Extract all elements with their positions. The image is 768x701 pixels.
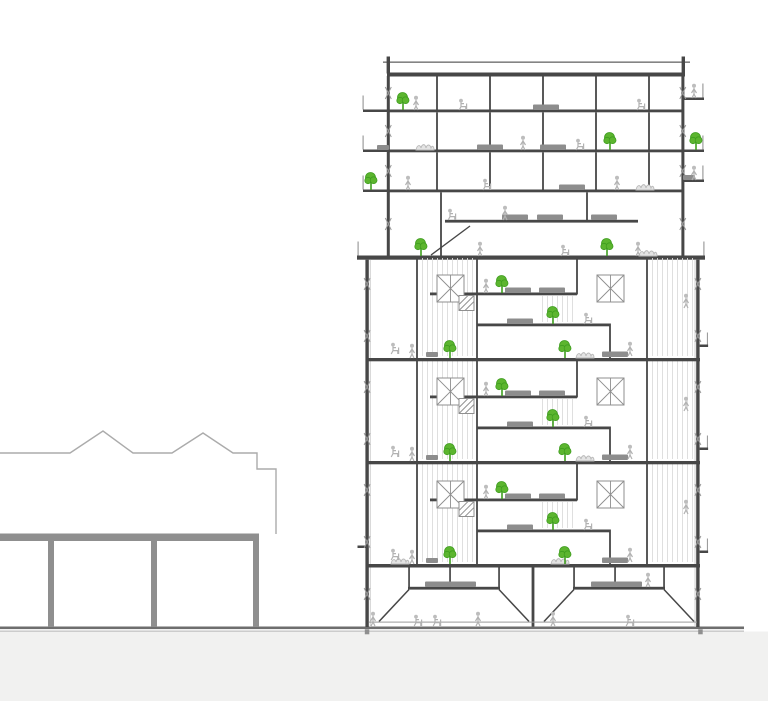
person-standing-icon	[628, 548, 633, 562]
person-standing-icon	[628, 342, 633, 356]
person-sitting-icon	[626, 615, 634, 626]
mezzanine-support	[498, 568, 500, 588]
person-standing-icon	[628, 445, 633, 459]
tree-icon	[397, 93, 409, 111]
balcony-railing	[363, 136, 364, 150]
foundation	[698, 629, 703, 634]
person-sitting-icon	[584, 416, 592, 427]
person-sitting-icon	[637, 99, 645, 110]
furniture-block	[591, 215, 617, 221]
person-standing-icon	[410, 550, 415, 564]
tree-icon	[559, 341, 571, 359]
furniture-block	[507, 319, 533, 325]
person-standing-icon	[371, 612, 376, 626]
neighbor-column	[151, 541, 157, 627]
neighbor-roof-outline	[0, 431, 276, 534]
facade-wall	[681, 76, 684, 256]
person-sitting-icon	[391, 343, 399, 354]
person-standing-icon	[646, 573, 651, 587]
person-standing-icon	[615, 176, 620, 190]
furniture-block	[537, 215, 563, 221]
furniture-block	[426, 455, 438, 460]
balcony-railing	[702, 166, 703, 180]
person-sitting-icon	[414, 615, 422, 626]
mezzanine-diagonal	[379, 590, 694, 622]
furniture-block	[533, 105, 559, 111]
tree-icon	[604, 133, 616, 151]
floor-slab	[367, 564, 701, 568]
tree-icon	[690, 133, 702, 151]
furniture-block	[507, 525, 533, 531]
tree-icon	[415, 239, 427, 257]
party-wall	[532, 568, 535, 627]
tree-icon	[601, 239, 613, 257]
mezzanine-support	[573, 568, 575, 588]
earth-fill	[0, 632, 768, 701]
furniture-block	[602, 352, 628, 358]
person-standing-icon	[484, 485, 489, 499]
person-standing-icon	[484, 279, 489, 293]
balcony-railing	[702, 84, 703, 98]
parapet	[387, 57, 390, 74]
furniture-block	[591, 582, 617, 588]
person-standing-icon	[484, 382, 489, 396]
furniture-block	[425, 582, 451, 588]
person-sitting-icon	[391, 549, 399, 560]
bush-icon	[636, 185, 654, 190]
person-sitting-icon	[561, 245, 569, 256]
facade-inner-line	[370, 260, 371, 627]
module	[364, 359, 708, 461]
person-standing-icon	[476, 612, 481, 626]
furniture-block	[505, 288, 531, 294]
person-sitting-icon	[584, 313, 592, 324]
bush-icon	[551, 559, 569, 564]
furniture-block	[377, 145, 389, 150]
person-sitting-icon	[459, 99, 467, 110]
bush-icon	[576, 456, 594, 461]
furniture-block	[505, 494, 531, 500]
person-standing-icon	[551, 612, 556, 626]
furniture-block	[540, 145, 566, 151]
person-sitting-icon	[576, 139, 584, 150]
mezzanine-slab	[408, 587, 500, 590]
furniture-block	[539, 391, 565, 397]
parapet	[682, 57, 685, 74]
floor-slab	[367, 358, 701, 361]
bush-icon	[416, 145, 434, 150]
furniture-block	[450, 582, 476, 588]
ground-line-shadow	[0, 631, 744, 632]
balcony-slab	[363, 110, 389, 113]
roof-parapet-line	[383, 62, 690, 63]
balcony-railing	[358, 242, 359, 256]
mezzanine-support	[408, 568, 410, 588]
furniture-block	[507, 422, 533, 428]
mezzanine-support	[663, 568, 665, 588]
balcony-railing	[363, 176, 364, 190]
building-section-drawing	[0, 0, 768, 701]
foundation	[365, 629, 370, 634]
person-standing-icon	[692, 84, 697, 98]
person-sitting-icon	[448, 209, 456, 220]
section-drawing-page	[0, 0, 768, 701]
neighbor-beam	[0, 534, 259, 542]
furniture-block	[559, 185, 585, 191]
furniture-block	[616, 582, 642, 588]
facade-wall	[696, 260, 699, 627]
module	[364, 256, 708, 358]
ground-line	[0, 627, 744, 630]
tree-icon	[559, 444, 571, 462]
person-sitting-icon	[433, 615, 441, 626]
balcony-railing	[703, 242, 704, 256]
furniture-block	[539, 288, 565, 294]
furniture-block	[602, 455, 628, 461]
stair-line	[431, 226, 470, 255]
ground-plane	[0, 627, 768, 701]
furniture-block	[426, 558, 438, 563]
person-standing-icon	[414, 96, 419, 110]
mezzanine-slab	[573, 587, 665, 590]
furniture-block	[477, 145, 503, 151]
furniture-block	[426, 352, 438, 357]
person-standing-icon	[478, 242, 483, 256]
furniture-block	[602, 558, 628, 564]
balcony-railing	[363, 96, 364, 110]
person-standing-icon	[410, 344, 415, 358]
person-standing-icon	[410, 447, 415, 461]
roof-slab	[387, 73, 685, 77]
person-sitting-icon	[391, 446, 399, 457]
bush-icon	[391, 559, 409, 564]
bush-icon	[639, 251, 657, 256]
bush-icon	[576, 353, 594, 358]
facade-wall	[365, 260, 368, 627]
upper-columns	[436, 77, 650, 256]
tree-icon	[365, 173, 377, 191]
module	[364, 462, 708, 564]
neighbor-building	[0, 431, 276, 627]
balcony-slab	[363, 190, 389, 193]
person-sitting-icon	[584, 519, 592, 530]
person-standing-icon	[406, 176, 411, 190]
neighbor-column	[253, 541, 259, 627]
facade-wall	[387, 76, 390, 256]
furniture-block	[539, 494, 565, 500]
person-standing-icon	[521, 136, 526, 150]
mezzanine-slab	[445, 220, 638, 223]
balcony-railing	[702, 136, 703, 150]
furniture-block	[505, 391, 531, 397]
floor-slab	[367, 461, 701, 464]
tower	[357, 57, 708, 635]
neighbor-column	[48, 541, 54, 627]
balcony-slab	[682, 150, 704, 153]
